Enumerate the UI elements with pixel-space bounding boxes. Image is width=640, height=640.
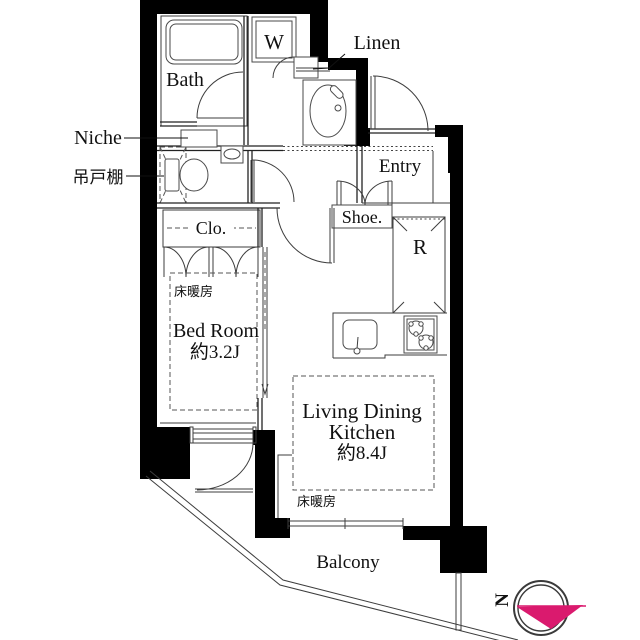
ldk-door-arc: [277, 208, 332, 263]
closet-label: Clo.: [196, 218, 227, 238]
bathroom: Bath: [160, 16, 248, 145]
entry-label: Entry: [379, 156, 422, 177]
floor-plan: Bath W: [0, 0, 640, 640]
ldk-label-line2: Kitchen: [329, 420, 396, 444]
ldk-size-label: 約8.4J: [337, 442, 387, 464]
hanging-cupboard-label: 吊戸棚: [73, 168, 124, 187]
bedroom-size-label: 約3.2J: [190, 341, 240, 363]
washer-label: W: [264, 30, 284, 54]
toilet-door-arc: [252, 160, 294, 202]
bedroom-window: [190, 427, 256, 443]
toilet-tank: [165, 159, 179, 191]
toilet-room: [160, 130, 294, 203]
toilet-icon: [180, 159, 208, 191]
linen-label: Linen: [354, 32, 401, 54]
kitchen-sink-icon: [343, 320, 377, 349]
ldk-window: [288, 518, 403, 529]
balcony-partition: [456, 573, 461, 630]
entrance-door-arc: [373, 76, 428, 131]
bath-door-arc: [197, 72, 243, 118]
bedroom-floor-heating-label: 床暖房: [174, 284, 213, 299]
bath-label: Bath: [166, 69, 204, 91]
bedroom-label: Bed Room: [173, 320, 260, 342]
living-dining-kitchen: Living Dining Kitchen 約8.4J 床暖房: [278, 313, 447, 529]
balcony-label: Balcony: [316, 552, 380, 573]
hallway: [157, 203, 334, 263]
floor-plan-page: Bath W: [0, 0, 640, 640]
shoe-label: Shoe.: [342, 207, 383, 227]
ldk-floor-heating-label: 床暖房: [297, 494, 336, 509]
refrigerator-space: [393, 217, 445, 313]
compass-north-label: N: [492, 593, 513, 607]
stove-icon: [404, 316, 437, 353]
refrigerator-label: R: [413, 235, 427, 259]
compass-icon: N: [492, 581, 586, 635]
niche-label: Niche: [74, 127, 122, 149]
balcony-door-arc: [197, 443, 253, 490]
